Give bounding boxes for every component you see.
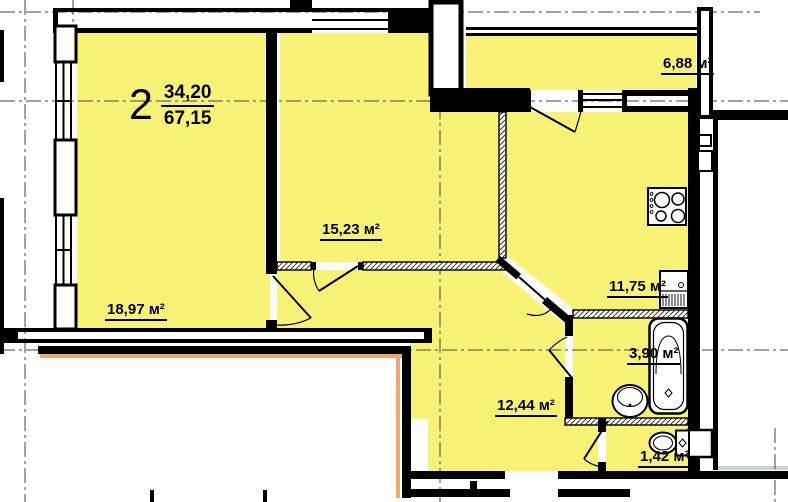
bathtub-icon bbox=[650, 319, 688, 414]
apartment-area-fraction: 34,20 67,15 bbox=[161, 82, 215, 130]
room-area-label-bedroom: 15,23 м² bbox=[320, 222, 382, 241]
apartment-living-area: 34,20 bbox=[161, 82, 215, 107]
window-left-upper bbox=[55, 62, 72, 140]
washbasin-icon bbox=[613, 385, 648, 417]
room-area-label-living: 18,97 м² bbox=[105, 302, 167, 321]
room-area-label-balcony: 6,88 м² bbox=[661, 56, 714, 75]
window-left-lower bbox=[55, 215, 72, 285]
vent-shaft-icon bbox=[698, 135, 712, 171]
window-kitchen-balcony bbox=[583, 93, 622, 108]
apartment-total-area: 67,15 bbox=[161, 107, 215, 130]
apartment-summary: 2 34,20 67,15 bbox=[129, 82, 214, 130]
apartment-number: 2 bbox=[129, 84, 153, 127]
room-area-label-bathroom: 3,90 м² bbox=[627, 346, 680, 365]
balcony-railing bbox=[466, 27, 698, 36]
floor-plan: 2 34,20 67,15 18,97 м² 15,23 м² 11,75 м²… bbox=[0, 0, 788, 502]
room-area-label-wc: 1,42 м² bbox=[638, 449, 691, 468]
floor-plan-drawing bbox=[0, 0, 788, 502]
living-room-fill bbox=[77, 33, 270, 329]
toilet-niche bbox=[688, 430, 712, 457]
room-area-label-hallway: 12,44 м² bbox=[495, 398, 557, 417]
window-top-bedroom bbox=[312, 10, 388, 30]
stove-icon bbox=[648, 188, 686, 225]
room-area-label-kitchen: 11,75 м² bbox=[607, 279, 668, 298]
entry-niche bbox=[411, 419, 428, 471]
